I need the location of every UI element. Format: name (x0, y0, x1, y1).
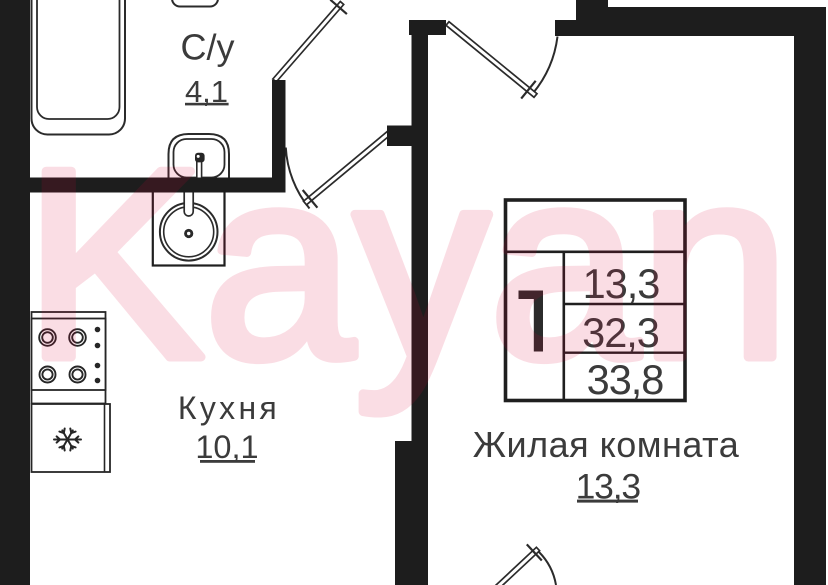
svg-text:Kayan: Kayan (24, 114, 790, 416)
